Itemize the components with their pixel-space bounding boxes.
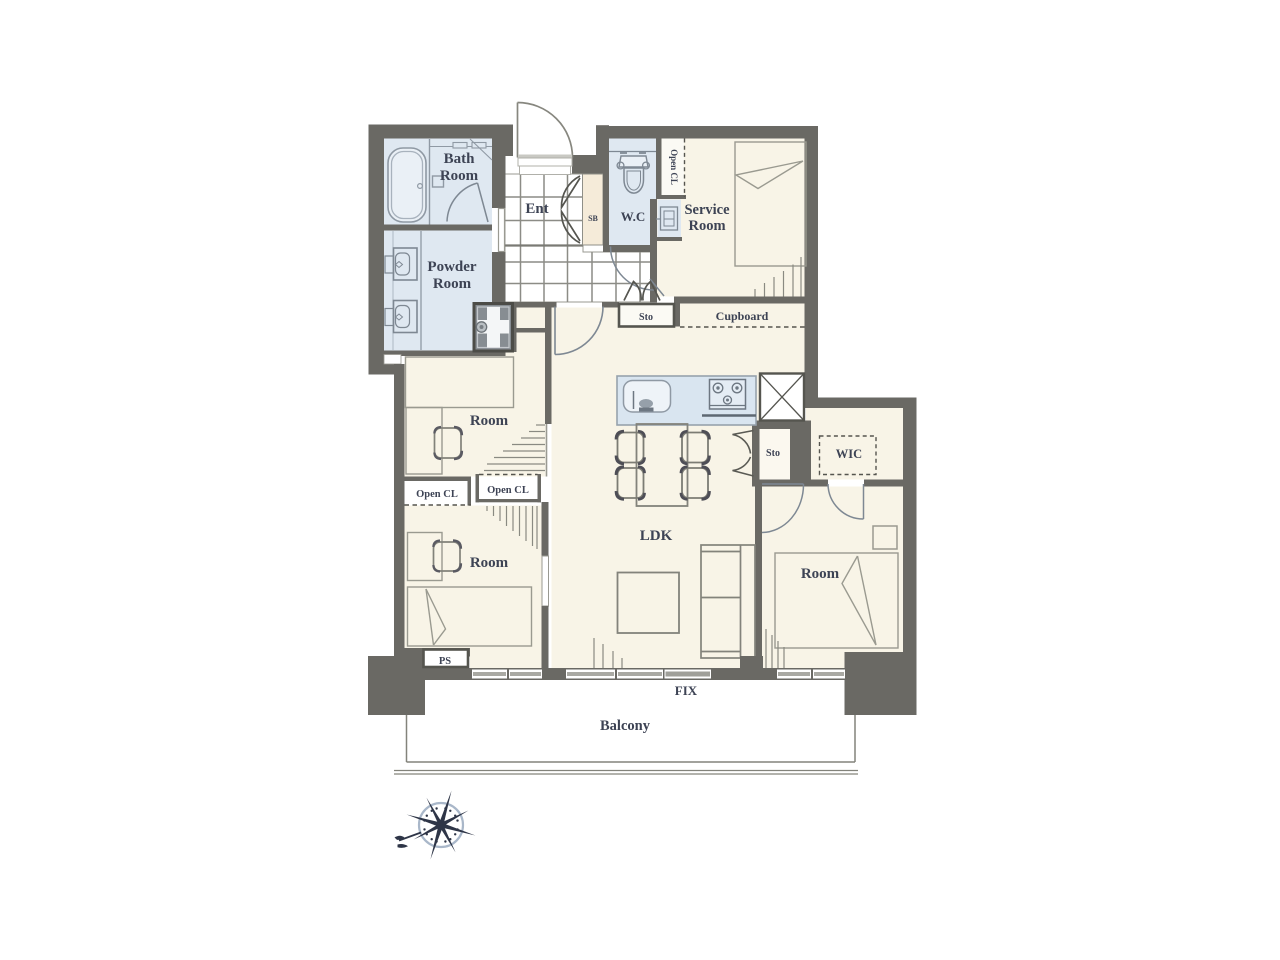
svg-text:PS: PS [439, 656, 451, 667]
svg-text:Balcony: Balcony [600, 718, 651, 734]
svg-text:Room: Room [433, 276, 472, 292]
svg-text:Room: Room [470, 555, 509, 571]
svg-text:Service: Service [684, 202, 730, 218]
svg-text:Open CL: Open CL [416, 489, 458, 500]
svg-text:WIC: WIC [836, 447, 862, 461]
svg-text:Powder: Powder [427, 259, 476, 275]
svg-text:Open CL: Open CL [669, 149, 679, 185]
svg-text:FIX: FIX [675, 683, 698, 698]
svg-text:Room: Room [688, 218, 725, 234]
svg-text:Cupboard: Cupboard [716, 309, 769, 323]
svg-text:W.C: W.C [621, 209, 645, 224]
svg-text:SB: SB [588, 214, 598, 223]
svg-text:Room: Room [801, 566, 840, 582]
svg-text:LDK: LDK [640, 528, 673, 544]
svg-text:Room: Room [440, 168, 479, 184]
svg-text:Sto: Sto [766, 448, 780, 459]
svg-text:Ent: Ent [525, 201, 548, 217]
svg-text:Sto: Sto [639, 312, 653, 323]
svg-text:Room: Room [470, 413, 509, 429]
svg-text:Bath: Bath [444, 151, 476, 167]
svg-text:Open CL: Open CL [487, 485, 529, 496]
